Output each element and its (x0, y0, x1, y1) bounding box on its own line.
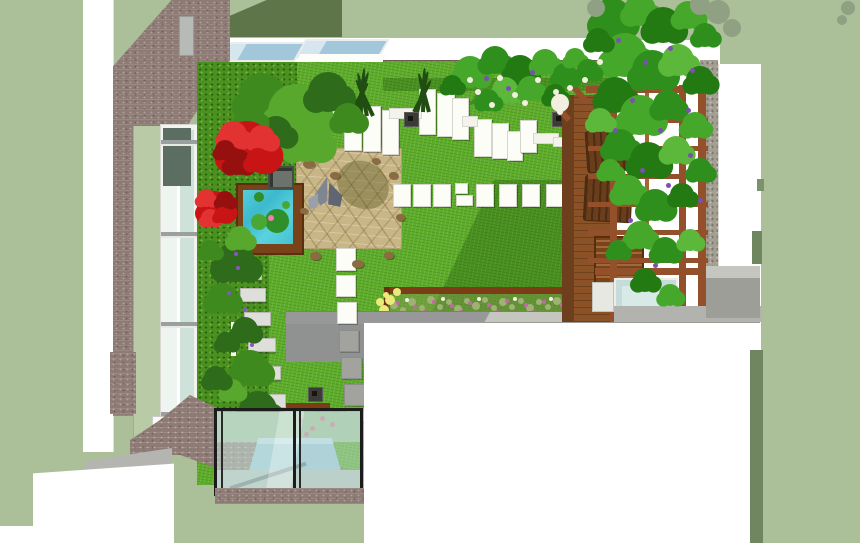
utility-box (268, 166, 294, 189)
glass-frame-post (360, 408, 363, 496)
glass-frame-post (293, 408, 296, 496)
deck-edge-dark (562, 95, 574, 322)
glass-frame-top-rail (214, 408, 363, 411)
olive-shadow-mark (752, 231, 762, 264)
olive-shadow-mark (757, 179, 764, 191)
chimney-vent-panel (179, 16, 194, 56)
foreground-white-wall (364, 322, 760, 543)
brick-strip-below-glass (215, 488, 364, 504)
glass-railing-group (214, 408, 365, 506)
deck-chair (585, 129, 630, 174)
glass-frame-post (221, 408, 223, 496)
glass-pane-overlay (214, 410, 364, 494)
garden-render-canvas (0, 0, 860, 543)
white-box-under-pergola (592, 282, 614, 312)
wall-shadow (383, 78, 640, 91)
pond-water (243, 190, 293, 244)
rose-planter-rail (384, 287, 592, 294)
glass-frame-post (214, 408, 217, 496)
inner-wall-pale (133, 126, 161, 456)
glass-frame-post (299, 408, 301, 496)
olive-shadow-strip (750, 350, 763, 543)
deck-chair (583, 175, 633, 223)
brick-wall-under-window (110, 352, 136, 414)
white-sliver-bottom-left (0, 526, 33, 543)
pavement-shaded (286, 324, 364, 362)
parapet-white-wall (33, 462, 174, 543)
grey-corner-block (706, 266, 760, 318)
window-dark-pane (163, 128, 191, 186)
